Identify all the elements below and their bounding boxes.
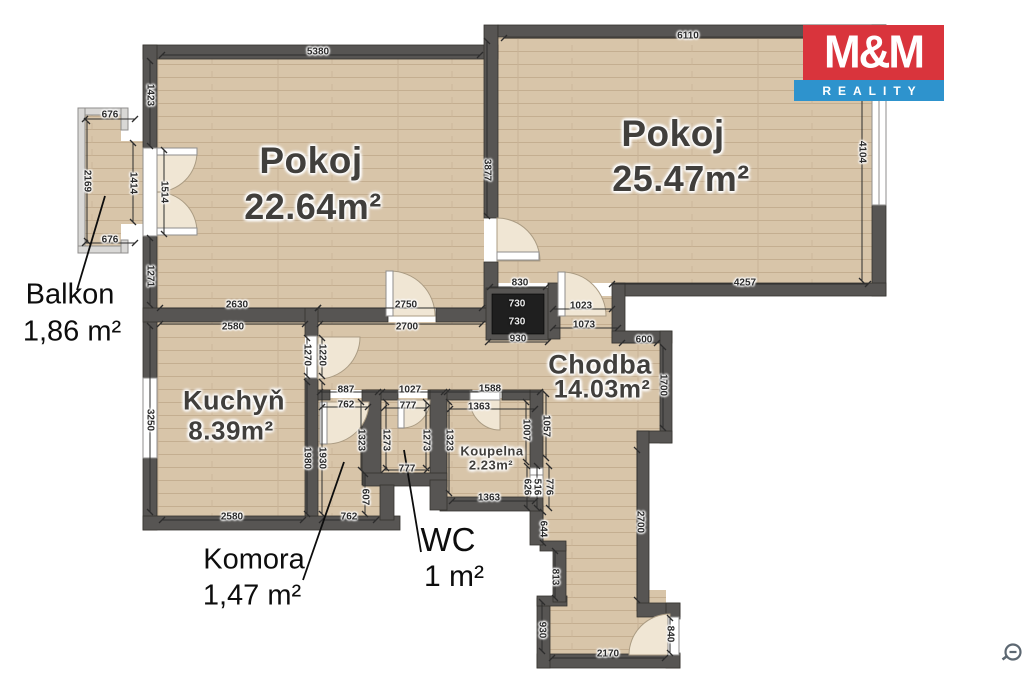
dim-label: 1273: [421, 429, 432, 451]
dim-label: 607: [360, 489, 371, 506]
callout-wc-area: 1 m²: [424, 560, 484, 594]
dim-label: 777: [399, 464, 416, 475]
room-area-chodba: 14.03m²: [554, 376, 651, 405]
dim-label: 676: [102, 235, 119, 246]
dim-label: 1514: [159, 181, 170, 203]
dim-label: 2630: [226, 300, 248, 311]
door-leaf: [497, 252, 539, 260]
dim-label: 1273: [381, 429, 392, 451]
zoom-out-icon[interactable]: [997, 639, 1024, 666]
room-name-kuchyn: Kuchyň: [183, 386, 285, 417]
dim-label: 1057: [541, 415, 552, 437]
dim-label: 2580: [222, 322, 244, 333]
logo-text-mm: M&M: [824, 26, 923, 79]
dim-label: 1027: [399, 385, 421, 396]
dim-label: 930: [510, 334, 527, 345]
dim-label: 644: [538, 521, 549, 538]
dim-label: 1007: [521, 419, 532, 441]
dim-label: 1323: [444, 429, 455, 451]
shaft-dim-label: 730: [509, 317, 526, 328]
callout-komora-area: 1,47 m²: [203, 580, 301, 613]
callout-wc-name: WC: [421, 521, 476, 559]
dim-label: 776: [544, 479, 555, 496]
dim-label: 813: [550, 569, 561, 586]
callout-balkon-name: Balkon: [26, 279, 115, 312]
door-opening-balkon: [143, 148, 157, 236]
dim-label: 762: [338, 400, 355, 411]
dim-label: 930: [537, 622, 548, 639]
logo-red-box: M&M: [803, 25, 944, 80]
dim-label: 1023: [570, 301, 592, 312]
door-leaf: [386, 271, 393, 316]
dim-label: 887: [338, 385, 355, 396]
callout-balkon-area: 1,86 m²: [23, 316, 121, 349]
room-floor-pokoj1: [157, 59, 484, 308]
dim-label: 1363: [478, 493, 500, 504]
room-area-pokoj1: 22.64m²: [244, 186, 382, 228]
dim-label: 1700: [658, 374, 669, 396]
logo-blue-box: REALITY: [794, 80, 944, 101]
mm-reality-logo: M&M REALITY: [794, 25, 944, 101]
room-area-pokoj2: 25.47m²: [612, 158, 750, 200]
door-leaf: [157, 148, 197, 155]
dim-label: 2169: [82, 170, 93, 192]
room-area-kuchyn: 8.39m²: [188, 416, 273, 447]
floorplan-page: g[data-name="room-floor-chodba"] rect{fi…: [0, 0, 1024, 683]
dim-label: 3877: [482, 159, 493, 181]
dim-label: 600: [636, 335, 653, 346]
dim-label: 1423: [145, 84, 156, 106]
room-name-koupelna: Koupelna: [460, 444, 523, 459]
door-leaf: [320, 402, 327, 444]
dim-label: 1271: [145, 265, 156, 287]
dim-label: 4104: [857, 141, 868, 163]
dim-label: 676: [102, 110, 119, 121]
logo-text-reality: REALITY: [815, 84, 922, 98]
dim-label: 840: [665, 626, 676, 643]
dim-label: 2700: [635, 511, 646, 533]
dim-label: 2170: [597, 649, 619, 660]
door-leaf: [157, 228, 197, 235]
dim-label: 1073: [573, 320, 595, 331]
dim-label: 2580: [221, 512, 243, 523]
room-area-koupelna: 2.23m²: [469, 458, 513, 473]
dim-label: 1270: [302, 344, 313, 366]
dim-label: 516: [532, 479, 543, 496]
dim-label: 1323: [356, 429, 367, 451]
dim-label: 777: [400, 401, 417, 412]
room-name-pokoj1: Pokoj: [259, 140, 362, 182]
dim-label: 1980: [302, 447, 313, 469]
shaft-dim-label: 730: [509, 299, 526, 310]
dim-label: 5380: [307, 47, 329, 58]
dim-label: 830: [512, 278, 529, 289]
dim-label: 1220: [317, 344, 328, 366]
dim-label: 2700: [396, 322, 418, 333]
dim-label: 6110: [677, 31, 699, 42]
dim-label: 1414: [128, 172, 139, 194]
dim-label: 762: [341, 512, 358, 523]
dim-label: 1588: [479, 384, 501, 395]
room-name-pokoj2: Pokoj: [621, 113, 724, 155]
callout-komora-name: Komora: [203, 544, 305, 577]
dim-label: 3250: [145, 409, 156, 431]
dim-label: 1930: [317, 447, 328, 469]
dim-label: 4257: [734, 278, 756, 289]
dim-label: 2750: [395, 300, 417, 311]
dim-label: 1363: [468, 402, 490, 413]
